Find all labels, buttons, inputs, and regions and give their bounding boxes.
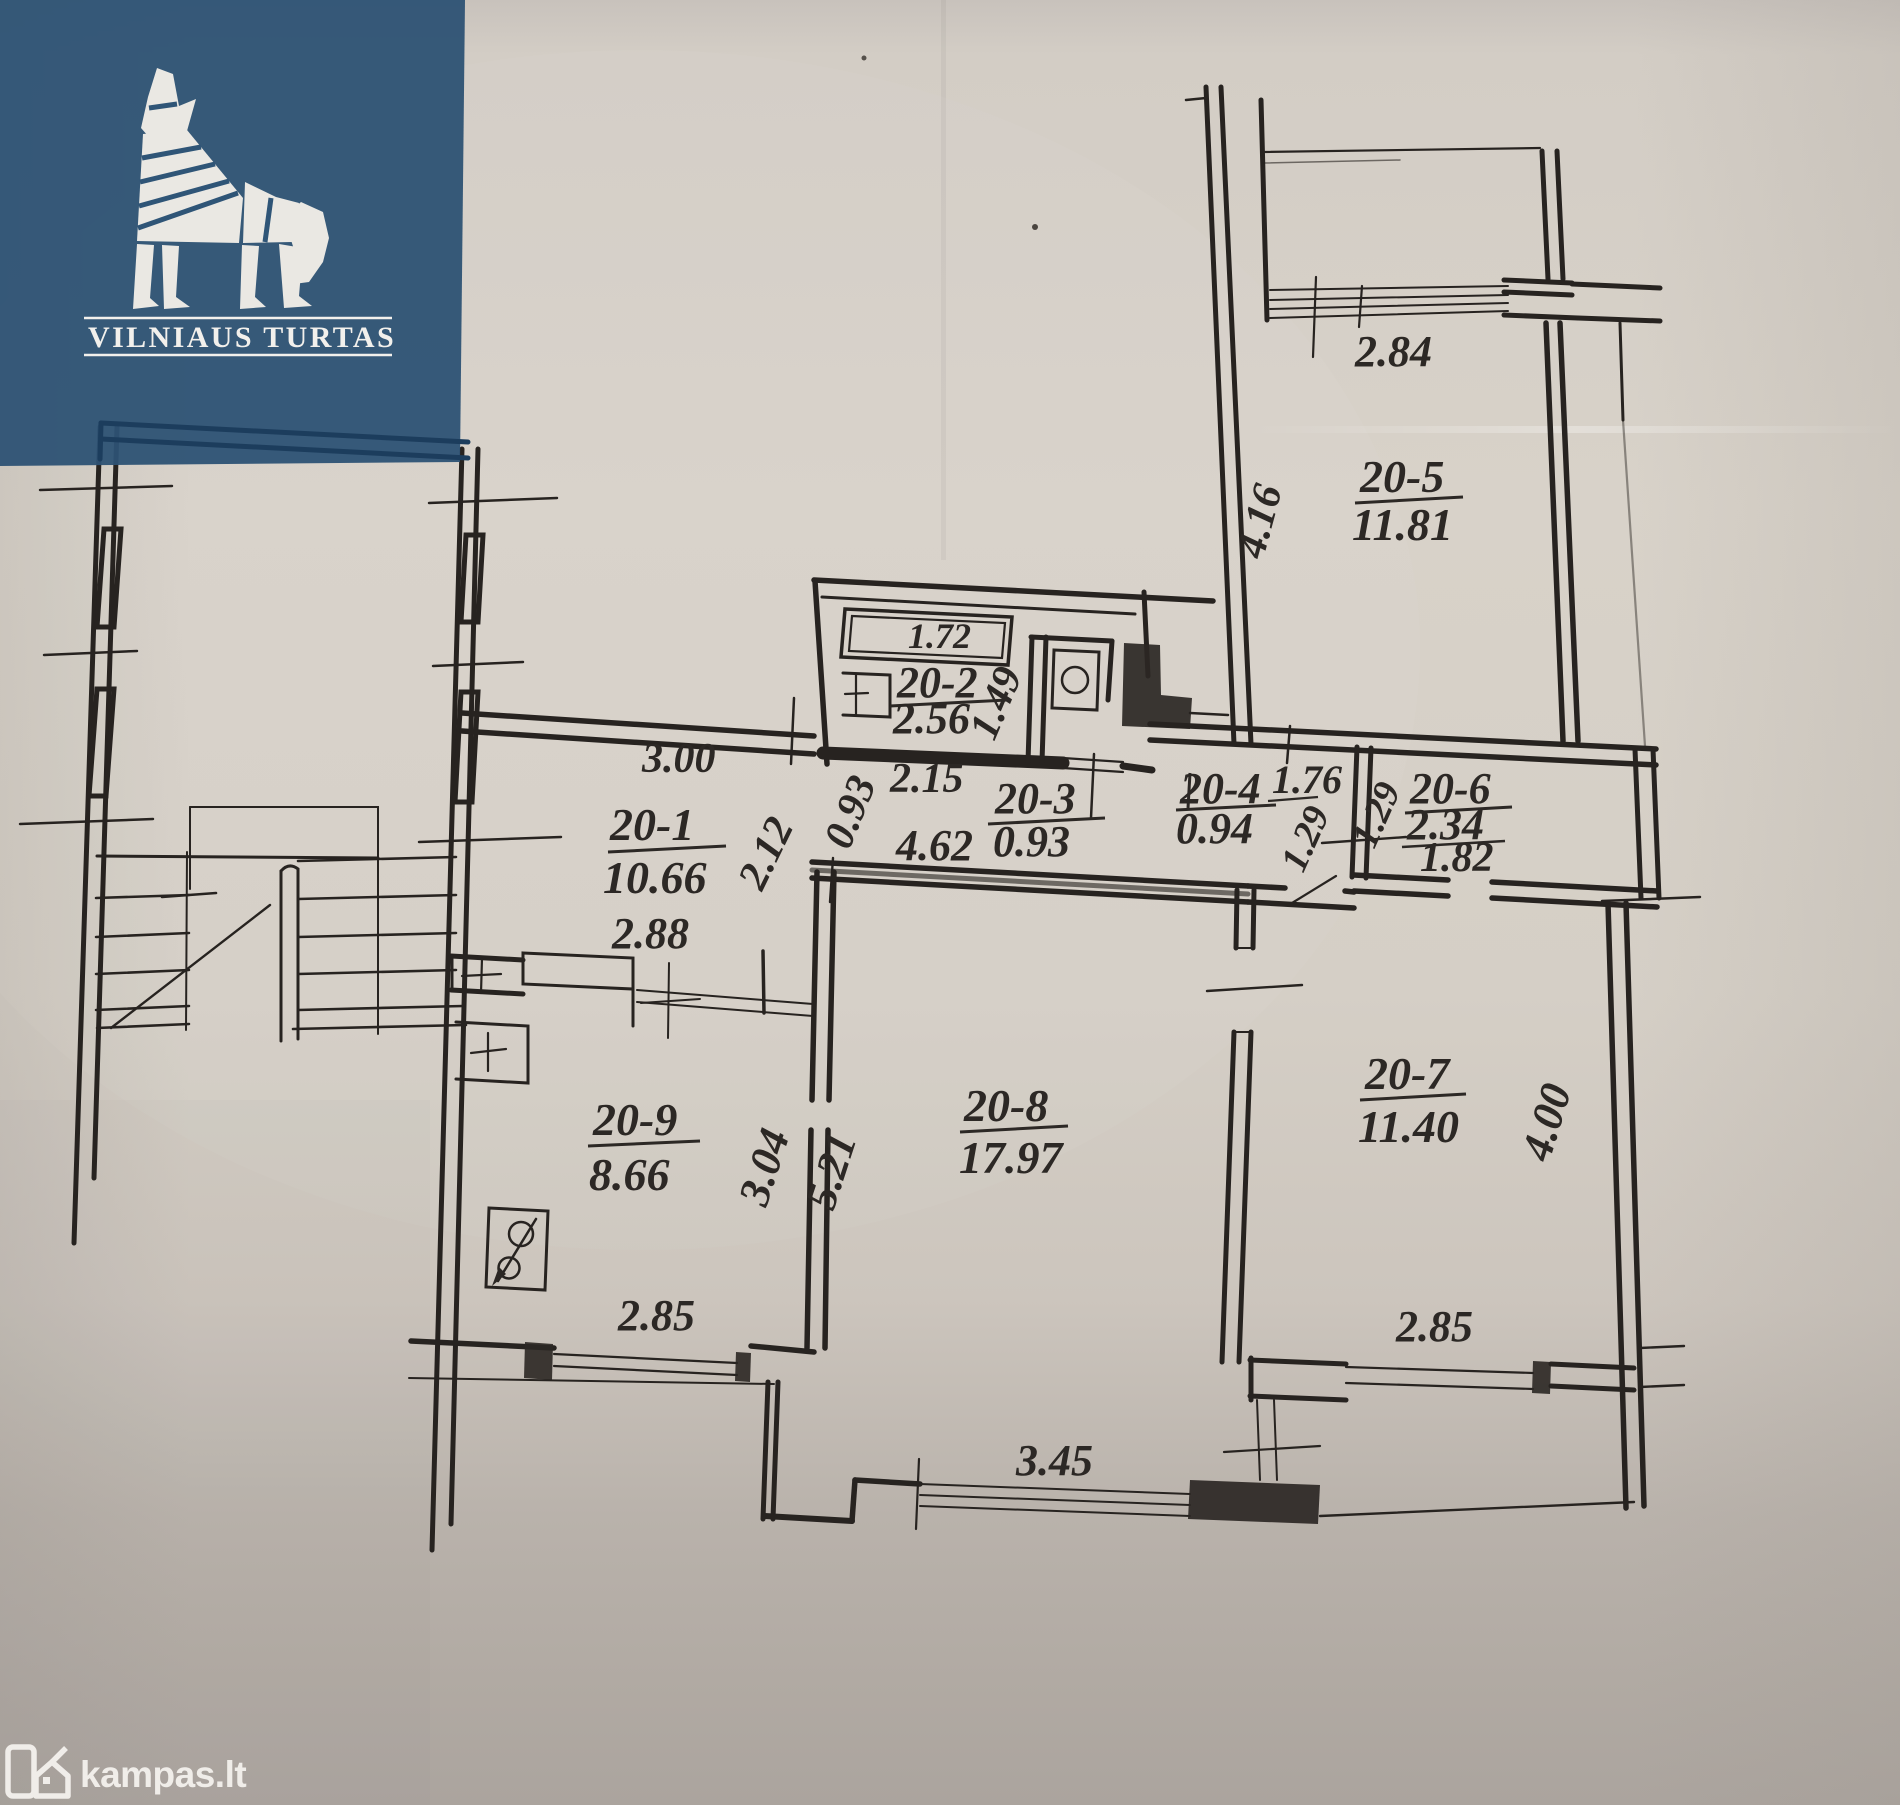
svg-text:2.85: 2.85 [617, 1291, 695, 1340]
svg-text:17.97: 17.97 [959, 1132, 1065, 1183]
svg-text:10.66: 10.66 [603, 852, 707, 903]
svg-text:kampas.lt: kampas.lt [80, 1754, 246, 1795]
svg-text:8.66: 8.66 [589, 1149, 670, 1200]
svg-text:VILNIAUS TURTAS: VILNIAUS TURTAS [88, 321, 396, 354]
svg-text:20-8: 20-8 [963, 1080, 1048, 1131]
svg-text:1.82: 1.82 [1420, 835, 1494, 881]
svg-text:2.88: 2.88 [611, 909, 689, 958]
svg-text:20-1: 20-1 [609, 799, 694, 850]
svg-text:20-3: 20-3 [994, 774, 1076, 823]
svg-text:20-5: 20-5 [1359, 451, 1444, 502]
svg-text:1.76: 1.76 [1272, 757, 1342, 802]
svg-text:2.84: 2.84 [1354, 327, 1432, 376]
svg-text:20-9: 20-9 [592, 1094, 677, 1145]
svg-text:20-7: 20-7 [1364, 1048, 1451, 1099]
svg-text:2.85: 2.85 [1395, 1302, 1473, 1351]
svg-text:0.94: 0.94 [1176, 804, 1253, 853]
svg-text:2.56: 2.56 [892, 694, 970, 743]
svg-text:2.15: 2.15 [889, 756, 964, 802]
svg-text:11.40: 11.40 [1358, 1101, 1459, 1152]
svg-text:11.81: 11.81 [1352, 499, 1453, 550]
svg-text:3.00: 3.00 [641, 736, 716, 782]
svg-text:4.62: 4.62 [895, 821, 973, 870]
svg-text:0.93: 0.93 [993, 817, 1070, 866]
svg-text:3.45: 3.45 [1015, 1436, 1093, 1485]
svg-text:1.72: 1.72 [908, 616, 971, 656]
